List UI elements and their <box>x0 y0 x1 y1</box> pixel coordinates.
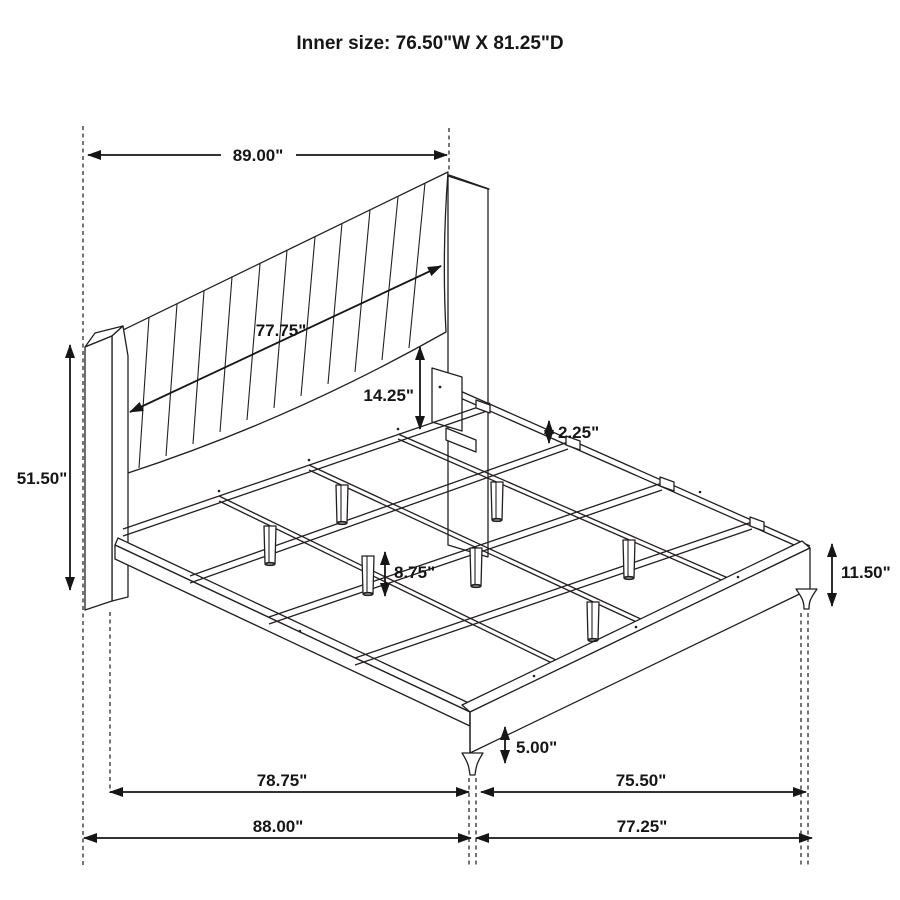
right-wing-front-face <box>448 176 488 557</box>
bracket-screw-hole <box>439 386 442 389</box>
dim-label-width-outer: 77.25" <box>617 817 668 836</box>
dimension-platform-length-outer: 88.00" <box>84 817 471 838</box>
dimension-platform-width-outer: 77.25" <box>476 817 812 838</box>
bed-dimension-diagram: Inner size: 76.50"W X 81.25"D <box>0 0 900 900</box>
dim-label-width-inner: 75.50" <box>616 771 667 790</box>
dimension-platform-length-inner: 78.75" <box>110 771 469 792</box>
dim-label-headboard-width: 89.00" <box>233 146 284 165</box>
dim-label-length-outer: 88.00" <box>253 817 304 836</box>
dim-label-panel-width: 77.75" <box>256 321 307 340</box>
dim-label-headboard-height: 51.50" <box>17 469 68 488</box>
dimension-headboard-height: 51.50" <box>17 345 70 590</box>
dim-label-length-inner: 78.75" <box>257 771 308 790</box>
slat-3-end-cap <box>660 477 674 491</box>
support-leg <box>623 540 635 580</box>
corner-leg-right <box>796 589 817 609</box>
dim-label-clearance: 8.75" <box>394 563 435 582</box>
support-leg <box>470 548 482 588</box>
support-rail-1 <box>219 496 558 666</box>
support-legs <box>264 482 817 775</box>
support-leg <box>587 602 599 642</box>
diagram-title: Inner size: 76.50"W X 81.25"D <box>296 33 563 54</box>
headboard <box>85 172 489 610</box>
left-wing-front-face <box>85 336 112 610</box>
dim-label-panel-to-slat: 14.25" <box>363 386 414 405</box>
dim-label-leg-height: 5.00" <box>516 738 557 757</box>
support-leg <box>264 526 276 566</box>
diagram-canvas: Inner size: 76.50"W X 81.25"D <box>0 0 900 900</box>
dim-label-rail-gap: 2.25" <box>558 423 599 442</box>
dim-label-side-height: 11.50" <box>841 563 891 582</box>
foot-rail-face <box>470 548 810 753</box>
headboard-left-wing <box>85 326 128 610</box>
dimension-platform-width-inner: 75.50" <box>481 771 806 792</box>
corner-leg-foot <box>462 753 483 775</box>
dimension-frame-side-height: 11.50" <box>832 544 891 606</box>
support-leg <box>336 485 348 525</box>
slat-4-end-cap <box>750 517 764 531</box>
dimension-headboard-width: 89.00" <box>88 146 447 165</box>
support-leg <box>362 556 374 596</box>
support-leg <box>491 482 503 522</box>
